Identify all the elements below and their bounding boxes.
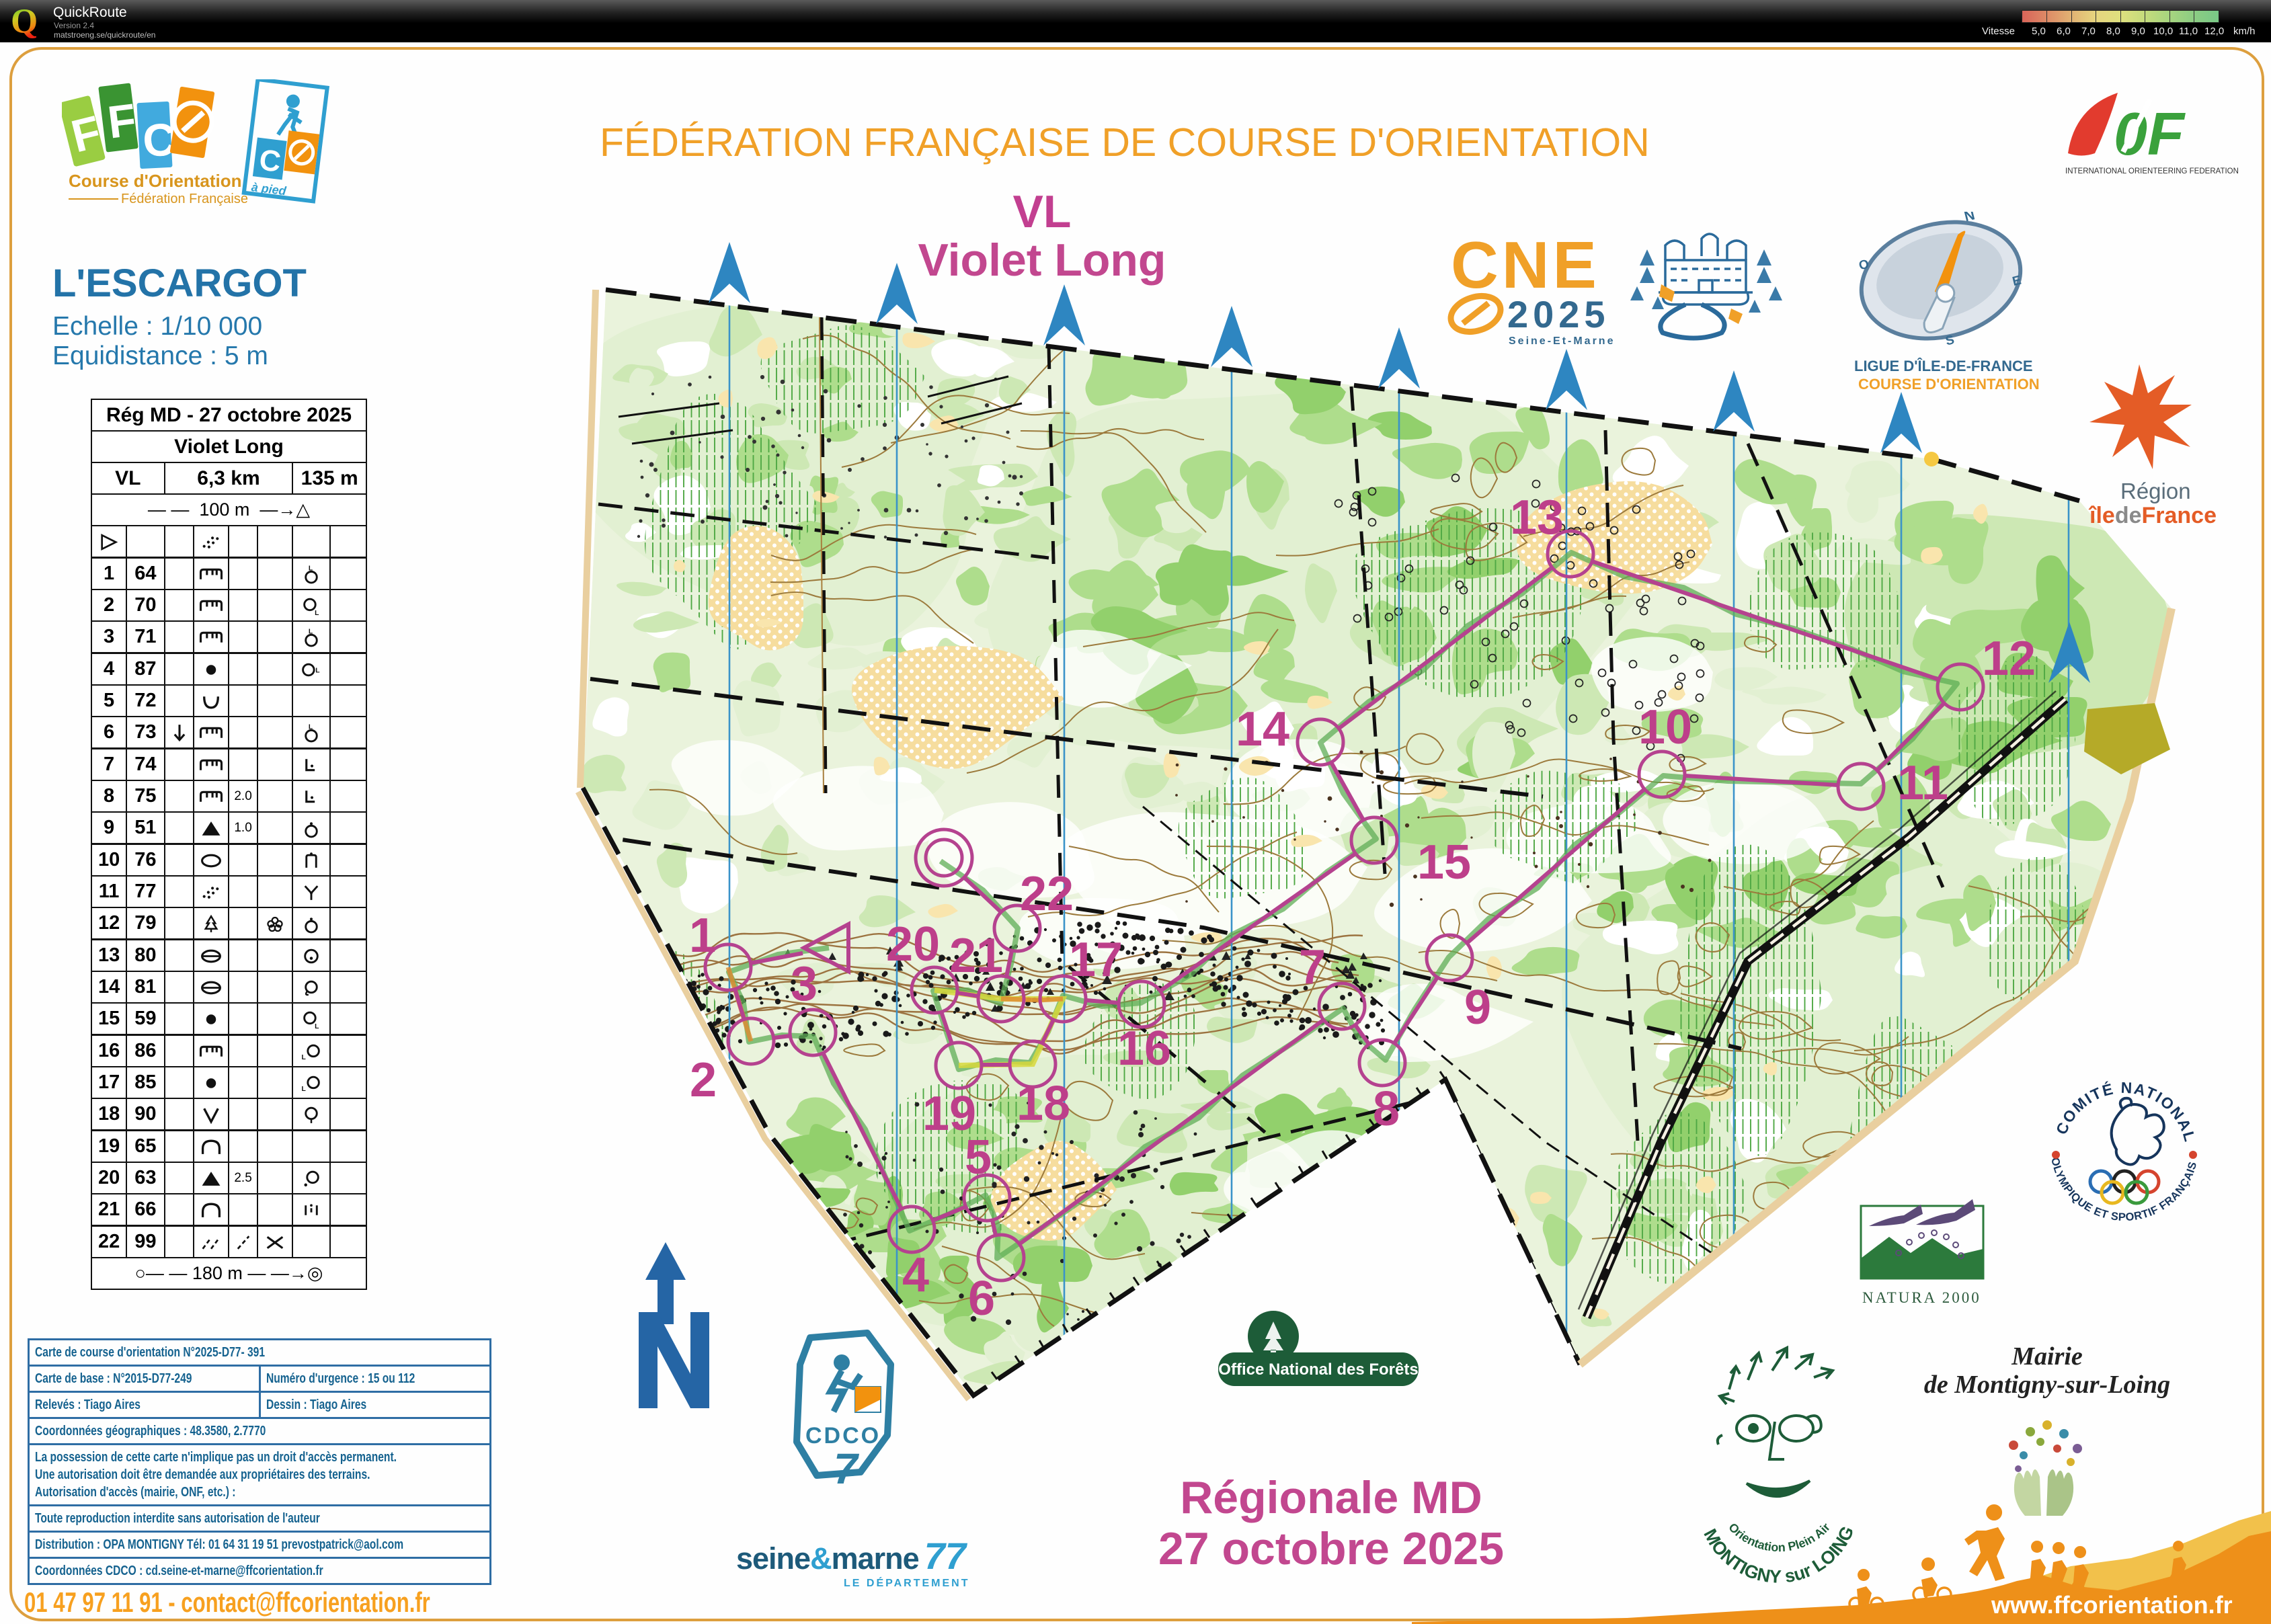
svg-text:18: 18 [1017, 1077, 1070, 1131]
svg-text:0F: 0F [2114, 101, 2186, 168]
svg-text:Région: Région [2120, 479, 2191, 503]
svg-text:6: 6 [968, 1272, 995, 1326]
svg-text:16: 16 [1117, 1022, 1171, 1075]
svg-text:12: 12 [1982, 632, 2036, 686]
svg-text:11: 11 [1897, 756, 1948, 810]
svg-text:L: L [302, 1086, 306, 1093]
svg-text:O: O [1858, 257, 1870, 274]
svg-text:COMITÉ NATIONAL: COMITÉ NATIONAL [2053, 1079, 2199, 1145]
svg-text:www.ffcorientation.fr: www.ffcorientation.fr [1991, 1591, 2233, 1619]
svg-text:9: 9 [1464, 981, 1491, 1034]
svg-text:20: 20 [886, 918, 940, 971]
svg-text:L: L [315, 1023, 319, 1030]
svg-text:7: 7 [834, 1445, 860, 1493]
svg-text:2: 2 [690, 1053, 717, 1107]
svg-text:Seine-Et-Marne: Seine-Et-Marne [1509, 335, 1615, 347]
svg-text:NATURA 2000: NATURA 2000 [1862, 1289, 1981, 1306]
svg-text:F: F [105, 94, 138, 148]
svg-text:1: 1 [689, 909, 716, 963]
svg-text:4: 4 [902, 1248, 929, 1302]
svg-text:L: L [302, 1054, 306, 1061]
svg-text:17: 17 [1069, 933, 1123, 987]
svg-text:3: 3 [791, 957, 818, 1011]
svg-text:L: L [315, 610, 319, 616]
svg-text:19: 19 [922, 1087, 976, 1141]
svg-text:8: 8 [1373, 1082, 1400, 1136]
svg-text:Fédération Française: Fédération Française [121, 192, 248, 206]
svg-text:22: 22 [1020, 867, 1074, 921]
svg-text:LIGUE D'ÎLE-DE-FRANCE: LIGUE D'ÎLE-DE-FRANCE [1854, 358, 2033, 374]
svg-text:Course d'Orientation: Course d'Orientation [69, 171, 242, 191]
svg-text:13: 13 [1510, 491, 1564, 544]
svg-text:îledeFrance: îledeFrance [2088, 503, 2217, 528]
svg-text:C: C [257, 143, 283, 179]
svg-text:21: 21 [949, 929, 1003, 983]
svg-text:2025: 2025 [1507, 293, 1610, 335]
svg-text:7: 7 [1299, 940, 1326, 994]
svg-text:15: 15 [1417, 836, 1471, 889]
svg-text:14: 14 [1236, 702, 1289, 756]
svg-text:Office National des Forêts: Office National des Forêts [1218, 1361, 1418, 1379]
svg-text:Q: Q [11, 4, 38, 39]
svg-text:INTERNATIONAL ORIENTEERING FED: INTERNATIONAL ORIENTEERING FEDERATION [2065, 167, 2239, 175]
svg-text:COURSE D'ORIENTATION: COURSE D'ORIENTATION [1858, 376, 2040, 393]
svg-text:CNE: CNE [1451, 228, 1600, 302]
svg-text:L: L [315, 667, 319, 675]
svg-text:10: 10 [1638, 700, 1692, 754]
